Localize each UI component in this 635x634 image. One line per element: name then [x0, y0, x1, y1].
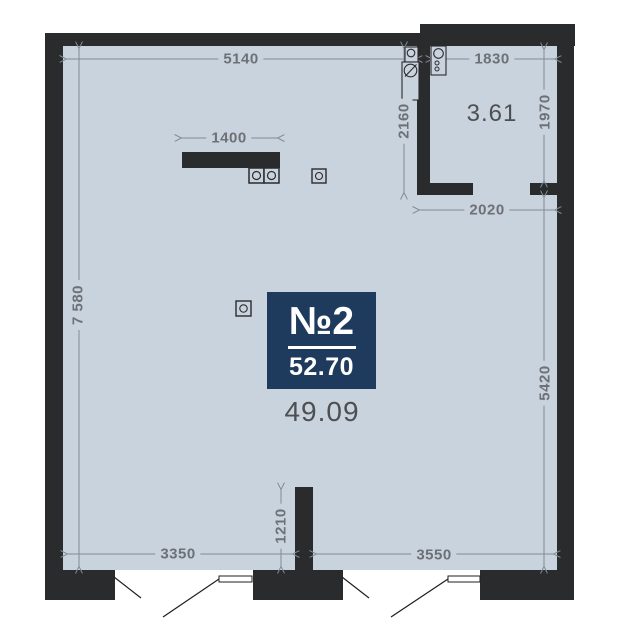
wall-bottom-middle-block — [253, 570, 343, 600]
kitchen-counter — [182, 152, 280, 168]
wall-left — [45, 33, 63, 600]
dimension-label-2160: 2160 — [396, 98, 413, 143]
bathroom-area-label: 3.61 — [467, 100, 518, 128]
floor-plan: 5140 1830 1400 2020 3350 3550 7 580 2160… — [0, 0, 635, 634]
wall-bathroom-bottom-right — [530, 183, 557, 195]
dimension-label-1400: 1400 — [206, 130, 251, 147]
door-swing-left — [114, 576, 252, 617]
wall-bottom-right-block — [480, 570, 574, 600]
door-swing-right — [342, 576, 480, 617]
unit-number: №2 — [289, 302, 354, 341]
dimension-label-5420: 5420 — [537, 360, 554, 405]
wall-bathroom-left — [417, 46, 430, 195]
dimension-label-1210: 1210 — [273, 503, 290, 548]
dimension-label-1830: 1830 — [469, 51, 514, 68]
badge-divider — [288, 346, 356, 349]
dimension-label-3550: 3550 — [411, 547, 456, 564]
wall-bathroom-bottom-left — [430, 183, 473, 195]
unit-badge: №2 52.70 — [267, 292, 376, 389]
dimension-label-2020: 2020 — [464, 202, 509, 219]
wall-bottom-left-block — [45, 570, 115, 600]
wall-top-main — [45, 33, 425, 46]
dimension-label-7580: 7 580 — [70, 280, 87, 330]
wall-top-bathroom — [420, 24, 575, 46]
dimension-label-5140: 5140 — [218, 51, 263, 68]
main-room-area-label: 49.09 — [284, 396, 359, 428]
wall-stub-bottom — [295, 487, 313, 570]
dimension-label-1970: 1970 — [537, 89, 554, 134]
wall-right — [557, 24, 574, 600]
unit-total-area: 52.70 — [289, 355, 354, 380]
dimension-label-3350: 3350 — [155, 546, 200, 563]
